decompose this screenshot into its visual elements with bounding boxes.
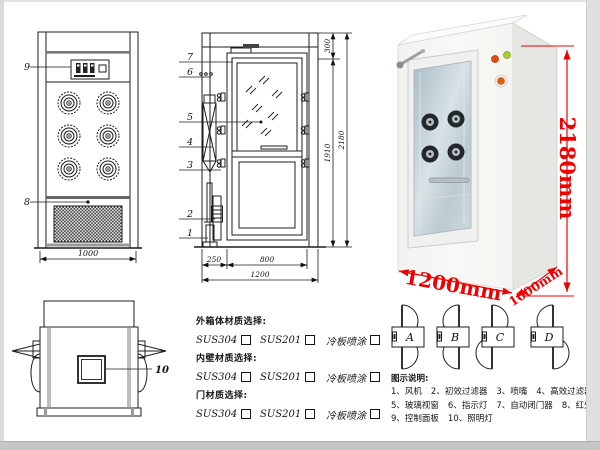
spec-sheet: 9 8 1000 — [0, 0, 600, 450]
dim-800: 800 — [260, 255, 275, 264]
material-option: SUS201 — [260, 372, 326, 383]
material-checkbox[interactable] — [370, 372, 380, 382]
material-option: SUS304 — [196, 409, 260, 420]
dim-2180: 2180 — [337, 130, 346, 150]
material-option-label: SUS201 — [260, 335, 301, 346]
leader-label-10: 10 — [155, 365, 169, 376]
leader-label-5: 5 — [187, 112, 193, 123]
leader-label-3: 3 — [187, 160, 193, 171]
indicator-green — [503, 51, 510, 58]
material-option: SUS304 — [196, 372, 260, 383]
material-option-label: SUS304 — [196, 335, 237, 346]
leader-label-2: 2 — [186, 209, 193, 220]
legend: 图示说明: 1、风机2、初效过滤器3、喷嘴4、高效过滤器 5、玻璃视窗6、指示灯… — [391, 372, 595, 427]
legend-item: 5、玻璃视窗 — [391, 401, 439, 411]
door-config-label-a: A — [405, 331, 414, 344]
material-option-label: 冷板喷涂 — [326, 407, 366, 422]
frame-right — [586, 0, 600, 450]
cabinet-side — [513, 23, 557, 290]
material-checkbox[interactable] — [305, 335, 315, 345]
frame-bottom — [0, 441, 600, 450]
legend-item: 6、指示灯 — [448, 401, 487, 411]
legend-item: 3、喷嘴 — [496, 387, 527, 397]
material-option-label: SUS304 — [196, 409, 237, 420]
material-option: SUS304 — [196, 335, 260, 346]
material-option-label: SUS304 — [196, 372, 237, 383]
left-handle — [31, 354, 40, 392]
material-option: SUS201 — [260, 409, 326, 420]
material-checkbox[interactable] — [241, 335, 251, 345]
emergency-button — [497, 77, 505, 85]
material-options-row: SUS304 SUS201 冷板喷涂 — [196, 331, 386, 349]
indicator-red — [491, 55, 498, 62]
top-view-drawing — [12, 301, 166, 416]
material-option: 冷板喷涂 — [326, 370, 380, 385]
material-selection: 外箱体材质选择: SUS304 SUS201 冷板喷涂 内壁材质选择: SUS3… — [196, 312, 386, 423]
legend-item: 7、自动闭门器 — [496, 401, 552, 411]
legend-item: 10、照明灯 — [448, 414, 493, 424]
front-view-drawing — [30, 32, 142, 263]
material-option: 冷板喷涂 — [326, 407, 380, 422]
legend-item: 4、高效过滤器 — [536, 387, 592, 397]
product-photo — [397, 15, 575, 297]
leader-label-8: 8 — [24, 197, 30, 208]
door-config-diagrams — [392, 305, 569, 369]
legend-item: 9、控制面板 — [391, 414, 439, 424]
leader-label-9: 9 — [24, 62, 30, 73]
leader-label-7: 7 — [187, 52, 194, 63]
material-checkbox[interactable] — [241, 409, 251, 419]
dim-1200: 1200 — [250, 270, 269, 279]
air-grille — [54, 206, 122, 242]
legend-line: 9、控制面板10、照明灯 — [391, 413, 595, 427]
material-option: 冷板喷涂 — [326, 333, 380, 348]
spray-head — [397, 62, 404, 69]
material-options-row: SUS304 SUS201 冷板喷涂 — [196, 368, 386, 386]
legend-title: 图示说明: — [391, 372, 595, 386]
ir-sensor-band — [46, 196, 130, 199]
legend-item: 2、初效过滤器 — [431, 387, 487, 397]
door-handle — [429, 178, 469, 183]
material-section-title: 外箱体材质选择: — [196, 312, 386, 331]
material-option-label: SUS201 — [260, 372, 301, 383]
material-option-label: SUS201 — [260, 409, 301, 420]
material-option: SUS201 — [260, 335, 326, 346]
legend-line: 1、风机2、初效过滤器3、喷嘴4、高效过滤器 — [391, 386, 595, 400]
material-checkbox[interactable] — [305, 409, 315, 419]
material-checkbox[interactable] — [370, 409, 380, 419]
right-handle — [138, 354, 147, 392]
material-section-title: 内壁材质选择: — [196, 349, 386, 368]
top-band — [46, 51, 130, 54]
photo-dim-height: 2180mm — [555, 117, 580, 220]
material-option-label: 冷板喷涂 — [326, 333, 366, 348]
control-panel — [71, 60, 109, 79]
material-options-row: SUS304 SUS201 冷板喷涂 — [196, 405, 386, 423]
front-width-dim: 1000 — [78, 249, 98, 258]
door-config-label-d: D — [544, 331, 554, 344]
leader-label-4: 4 — [186, 137, 193, 148]
leader-label-1: 1 — [187, 228, 193, 239]
legend-item: 1、风机 — [391, 387, 422, 397]
frame-left — [0, 0, 4, 450]
dim-300: 300 — [323, 39, 332, 54]
material-checkbox[interactable] — [305, 372, 315, 382]
door-config-label-c: C — [496, 331, 505, 344]
material-checkbox[interactable] — [241, 372, 251, 382]
door-config-label-b: B — [450, 331, 459, 344]
material-option-label: 冷板喷涂 — [326, 370, 366, 385]
dim-250: 250 — [206, 255, 222, 264]
legend-line: 5、玻璃视窗6、指示灯7、自动闭门器8、红外线感应器 — [391, 400, 595, 414]
height-dims — [318, 33, 352, 247]
dim-1910: 1910 — [323, 143, 332, 162]
material-checkbox[interactable] — [370, 335, 380, 345]
material-section-title: 门材质选择: — [196, 386, 386, 405]
leader-label-6: 6 — [187, 67, 193, 78]
frame-top — [0, 0, 600, 2]
